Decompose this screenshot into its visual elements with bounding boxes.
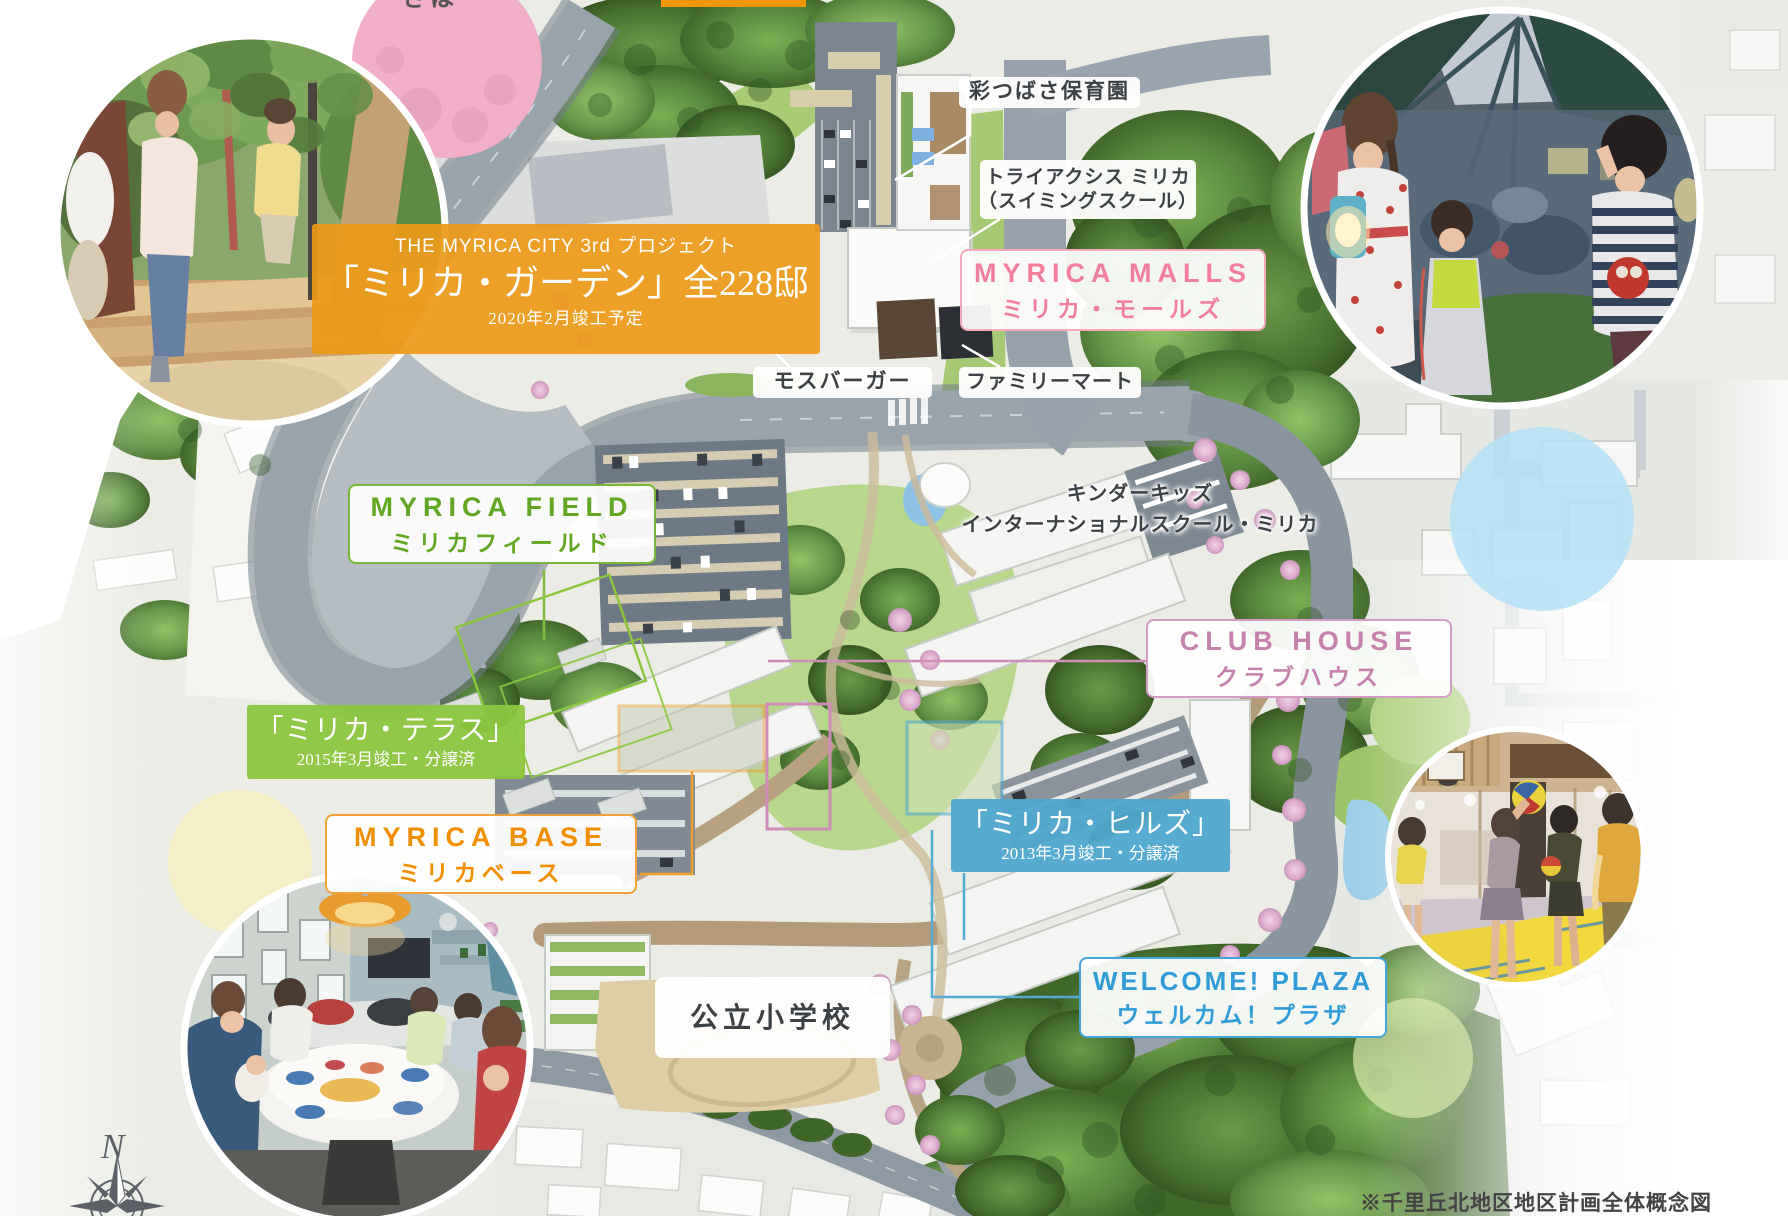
svg-text:N: N: [100, 1127, 126, 1166]
